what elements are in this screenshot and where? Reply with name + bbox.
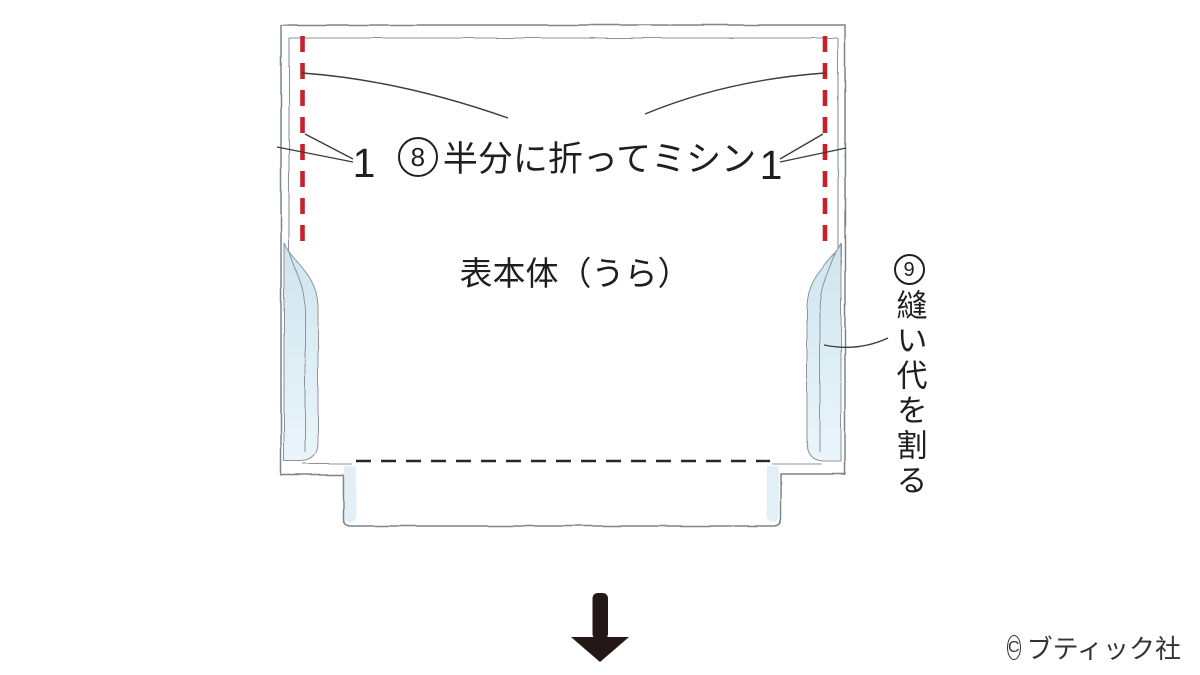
bottom-step-slot-left: [344, 466, 356, 522]
copyright-notice: C ブティック社: [1007, 629, 1177, 666]
step9-label: 9 縫い代を割る: [883, 254, 935, 499]
seam-width-label-right: 1: [751, 142, 791, 189]
sewing-diagram-svg: [0, 0, 1200, 675]
copyright-text: ブティック社: [1027, 629, 1181, 666]
step8-label: 8 半分に折ってミシン: [397, 131, 757, 182]
step9-circled-number: 9: [894, 254, 925, 285]
step8-text: 半分に折ってミシン: [443, 131, 756, 182]
copyright-icon: C: [1007, 635, 1021, 660]
piece-name-label: 表本体（うら）: [450, 247, 700, 295]
step8-circled-number: 8: [398, 137, 438, 177]
bottom-step-slot-right: [767, 466, 779, 522]
diagram-canvas: 8 半分に折ってミシン 表本体（うら） 1 1 9 縫い代を割る C ブティック…: [0, 0, 1200, 675]
seam-width-label-left: 1: [344, 140, 384, 187]
step9-text: 縫い代を割る: [894, 289, 925, 499]
down-arrow-icon: [571, 593, 629, 662]
